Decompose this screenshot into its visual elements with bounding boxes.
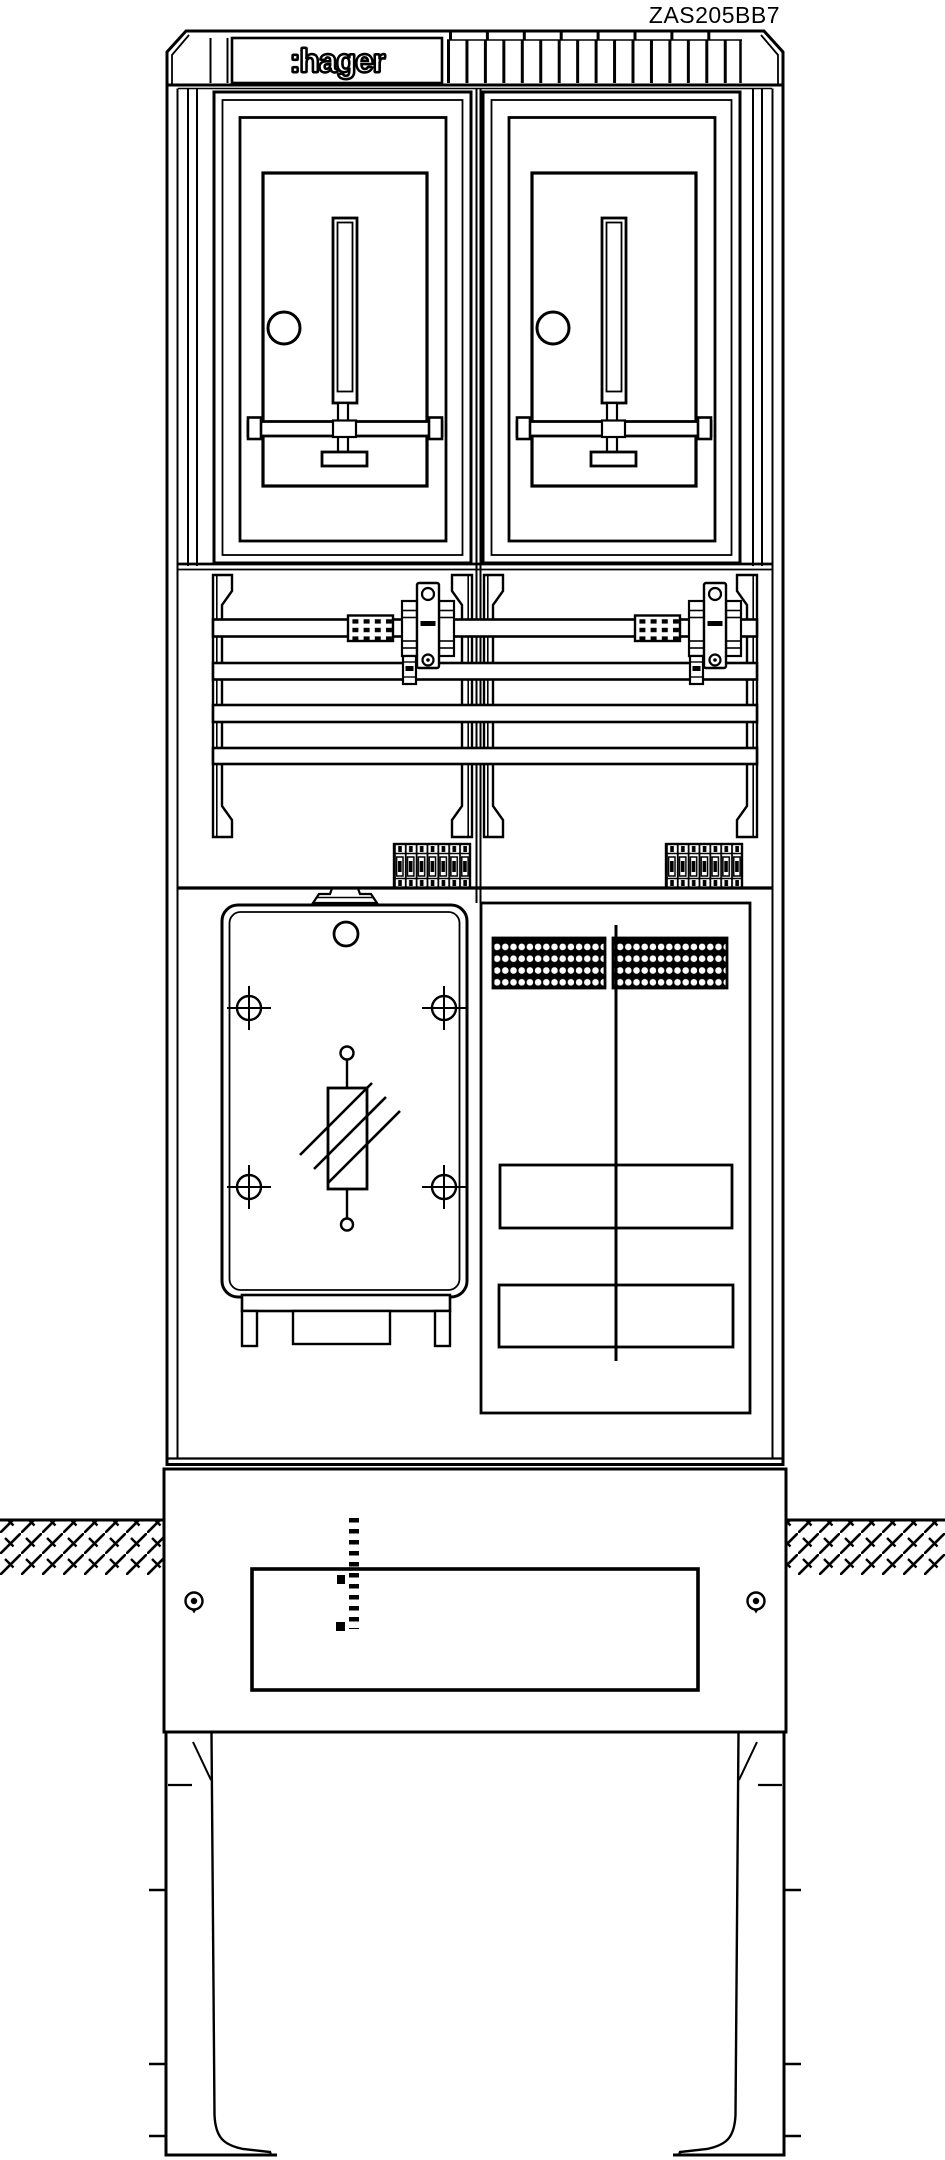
cable-terminal-panel: [481, 903, 750, 1413]
busbar-terminal-block: [635, 616, 680, 642]
meter-panel-left: [214, 92, 471, 563]
depth-marker: [337, 1575, 345, 1584]
model-number-label: ZAS205BB7: [600, 2, 780, 29]
base-leg-left: [149, 1733, 277, 2155]
seal-knob: [268, 312, 300, 344]
surge-arrester-plate: [222, 889, 467, 1347]
vent-grille: [447, 31, 742, 83]
terminal-cover-block: [493, 938, 605, 988]
hager-brand-logo: :hager: [233, 39, 441, 83]
cable-entry-window: [252, 1569, 698, 1690]
terminal-cover-block: [613, 938, 727, 988]
depth-marker: [336, 1622, 345, 1631]
cabinet-line-drawing: [0, 0, 945, 2160]
base-section: [164, 1469, 786, 1732]
meter-panel-right: [483, 92, 740, 563]
din-terminal-strip: [666, 844, 742, 888]
busbar-terminal-block: [348, 616, 393, 642]
drawing-canvas: ZAS205BB7 :hager: [0, 0, 945, 2160]
din-terminal-strip: [394, 844, 470, 888]
base-leg-right: [673, 1733, 801, 2155]
